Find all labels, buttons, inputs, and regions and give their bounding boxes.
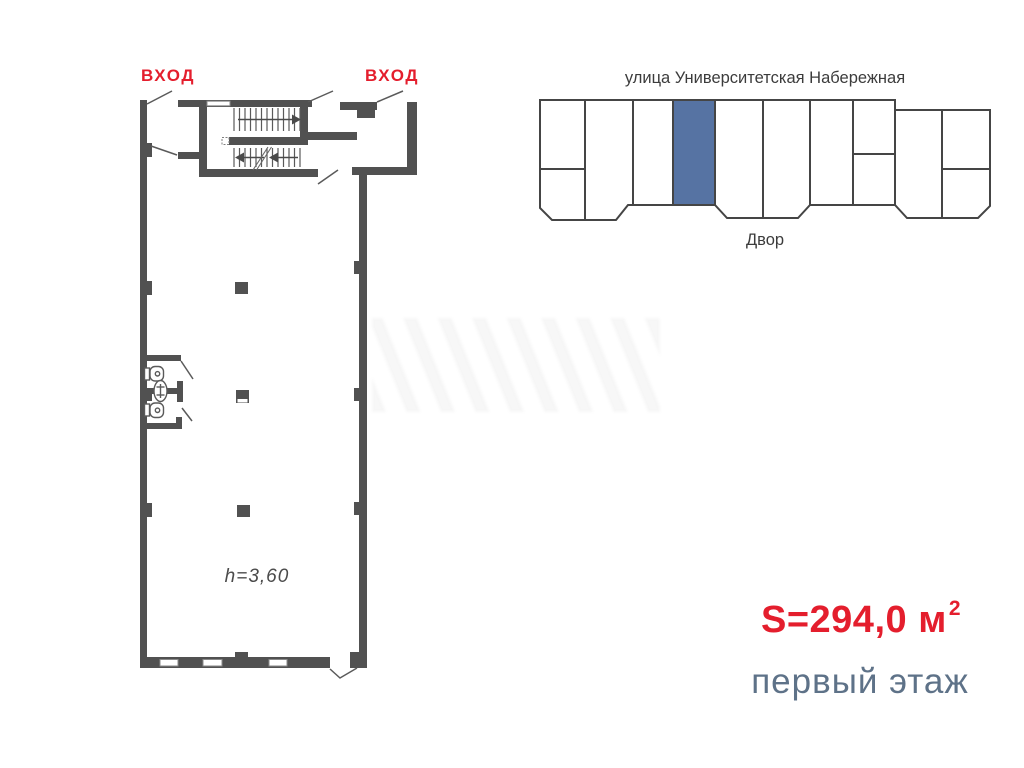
watermark	[372, 318, 660, 412]
entrance-label-left: ВХОД	[141, 66, 195, 86]
area-superscript: 2	[949, 597, 961, 620]
ceiling-height-label: h=3,60	[197, 566, 317, 588]
listing-floorplan-page: ВХОД ВХОД улица Университетская Набережн…	[0, 0, 1024, 768]
street-label: улица Университетская Набережная	[515, 69, 1015, 88]
area-value: S=294,0 м	[761, 599, 947, 641]
highlighted-section	[674, 101, 714, 205]
sink-icon	[154, 381, 167, 402]
landing-dashed-edge	[222, 138, 229, 145]
toilet-icon	[145, 367, 164, 382]
location-diagram	[540, 100, 990, 220]
building-outline	[540, 100, 990, 220]
toilet-icon	[145, 403, 164, 418]
yard-label: Двор	[515, 231, 1015, 250]
area-text: S=294,0 м2	[695, 599, 1024, 642]
stairwell-walls	[147, 102, 357, 177]
columns	[235, 282, 250, 517]
floor-label: первый этаж	[695, 662, 1024, 702]
entrance-label-right: ВХОД	[365, 66, 419, 86]
